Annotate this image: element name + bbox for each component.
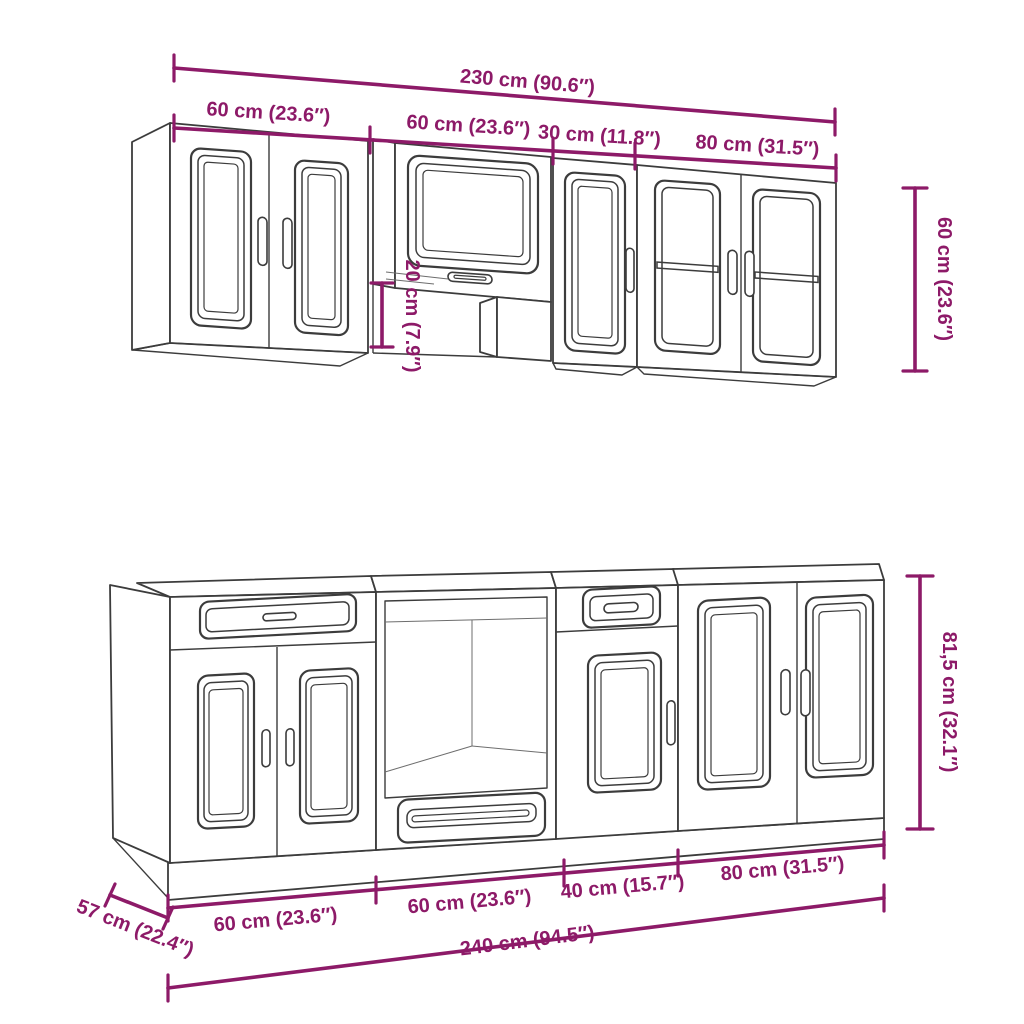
wall-cabinet-60-bridge [373,139,551,361]
door-frame [198,673,254,829]
drawer-handle [604,602,638,613]
door-handle [781,669,790,714]
cabinet-side-panel [132,123,170,350]
cabinet-side-panel [110,585,170,863]
glass-door-frame [753,189,820,366]
dim-label-wall-seg-4: 80 cm (31.5″) [695,131,820,161]
wall-cabinet-80 [637,165,836,386]
dim-label-wall-seg-2: 60 cm (23.6″) [406,111,531,141]
bottom-drawer-front [398,792,545,843]
hood-box-side [480,297,497,357]
door-handle [283,218,292,269]
door-handle [745,251,754,297]
door-handle [667,701,675,745]
door-handle [801,670,810,716]
dim-label-wall-seg-1: 60 cm (23.6″) [206,98,331,128]
door-handle [626,248,634,293]
cabinet-side-sliver [373,139,395,288]
door-handle [286,729,294,766]
recess-bottom-edge [373,353,497,357]
product-dimension-image: 230 cm (90.6″) 60 cm (23.6″) 60 cm (23.6… [0,0,1024,1024]
door-frame [300,668,358,824]
hood-box-front [497,297,551,361]
base-cabinet-60-left [110,576,376,863]
base-cabinet-row [110,564,884,900]
dim-label-base-height: 81,5 cm (32.1″) [938,632,960,773]
dim-label-base-total: 240 cm (94.5″) [459,922,596,961]
dim-label-base-seg-1: 60 cm (23.6″) [213,904,339,937]
glass-door-frame [655,180,720,355]
kitchen-diagram: 230 cm (90.6″) 60 cm (23.6″) 60 cm (23.6… [0,0,1024,1024]
wall-cabinet-60-left [132,123,368,366]
door-handle [258,217,267,266]
glass-door-frame [565,172,625,354]
dim-label-wall-seg-3: 30 cm (11.8″) [537,121,661,150]
dim-label-base-seg-3: 40 cm (15.7″) [560,871,686,904]
glass-door-frame [191,148,251,329]
door-frame [588,652,661,793]
wall-cabinet-30 [553,158,637,375]
door-frame [698,597,770,790]
door-frame [806,594,873,778]
door-handle [262,730,270,767]
door-handle [728,250,737,295]
dim-label-base-seg-2: 60 cm (23.6″) [407,886,533,919]
drawer-handle [263,612,296,621]
base-cabinet-40 [551,569,678,839]
dim-label-wall-height: 60 cm (23.6″) [933,217,955,341]
base-cabinet-60-oven-open [371,572,556,850]
glass-door-frame [295,160,348,336]
dim-label-hood-gap: 20 cm (7.9″) [401,260,423,373]
base-cabinet-80 [673,564,884,831]
